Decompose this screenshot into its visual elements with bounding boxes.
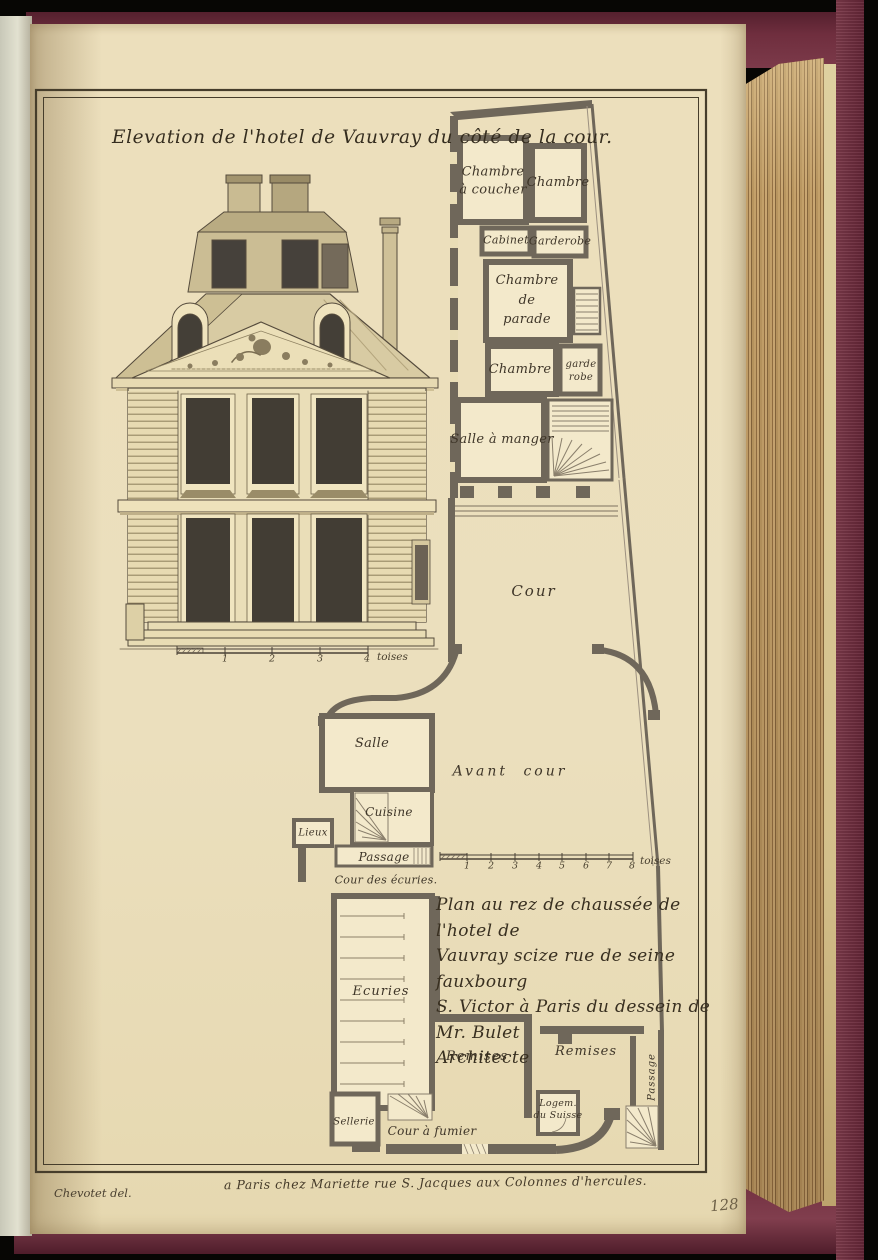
room-label-ecuries: Ecuries	[353, 983, 410, 1001]
room-label-garderobe: Garderobe	[529, 235, 591, 250]
scale2-tick-4: 4	[536, 861, 542, 872]
scale2-tick-3: 3	[512, 861, 518, 872]
scale2-tick-6: 6	[583, 861, 589, 872]
engraver-credit: Chevotet del.	[54, 1186, 132, 1200]
room-label-salle-a-manger: Salle à manger	[450, 431, 554, 449]
grand-staircase	[548, 400, 612, 480]
scale2-unit: toises	[640, 855, 671, 867]
area-label-cour-des-ecuries: Cour des écuries.	[335, 874, 438, 889]
plate-title: Elevation de l'hotel de Vauvray du côté …	[112, 127, 613, 148]
attic-block	[188, 212, 358, 292]
scale1-tick-4: 4	[364, 654, 370, 665]
area-label-avant-cour: Avant cour	[453, 763, 568, 782]
room-label-cabinet: Cabinet	[483, 234, 529, 249]
upper-windows	[180, 394, 368, 498]
lower-windows	[181, 514, 367, 622]
room-label-chambre-de-parade: Chambre de parade	[496, 271, 559, 330]
room-label-chambre-a-coucher: Chambre à coucher	[459, 163, 527, 198]
courtyard-stair	[388, 1094, 432, 1120]
room-label-cuisine: Cuisine	[365, 804, 413, 820]
area-label-cour-a-fumier: Cour à fumier	[388, 1123, 477, 1139]
scale2-tick-5: 5	[559, 861, 565, 872]
scale2-tick-1: 1	[464, 861, 470, 872]
room-label-chambre-2: Chambre	[489, 361, 552, 379]
room-label-passage: Passage	[358, 849, 409, 865]
room-label-chambre-1: Chambre	[527, 174, 590, 192]
elevation-drawing	[112, 175, 438, 649]
room-label-lieux: Lieux	[298, 826, 327, 840]
book-photograph: Elevation de l'hotel de Vauvray du côté …	[0, 0, 878, 1260]
service-stair	[574, 288, 600, 334]
room-label-salle: Salle	[355, 735, 389, 753]
room-label-garde-robe: garde robe	[566, 358, 597, 384]
room-label-logement-du-suisse: Logem. du Suisse	[534, 1098, 583, 1122]
plate-caption: Plan au rez de chaussée de l'hotel de Va…	[436, 893, 722, 1072]
scale1-tick-1: 1	[222, 654, 228, 665]
scale1-tick-2: 2	[269, 654, 275, 665]
scale1-tick-3: 3	[317, 654, 323, 665]
handwritten-page-number: 128	[709, 1195, 739, 1215]
scale2-tick-8: 8	[629, 861, 635, 872]
area-label-cour: Cour	[511, 581, 556, 601]
scale2-tick-7: 7	[606, 861, 612, 872]
facade	[118, 388, 436, 622]
scale1-unit: toises	[377, 651, 408, 663]
corner-stair	[626, 1106, 658, 1148]
room-label-sellerie: Sellerie	[333, 1115, 374, 1129]
scale2-tick-2: 2	[488, 861, 494, 872]
